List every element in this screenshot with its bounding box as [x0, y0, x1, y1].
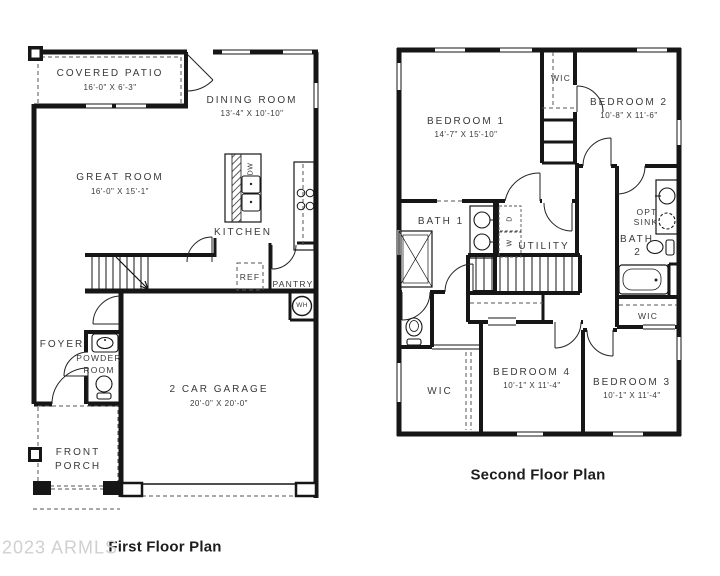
bath2-label-2: 2 — [634, 248, 642, 258]
bedroom2-label: BEDROOM 2 — [590, 98, 668, 108]
wh-label: WH — [296, 303, 307, 310]
bedroom1-label: BEDROOM 1 — [427, 117, 505, 127]
bedroom4-dims: 10'-1" X 11'-4" — [503, 382, 560, 390]
dw-label: DW — [248, 163, 255, 176]
floor-plan-page: COVERED PATIO 16'-0" X 6'-3" DINING ROOM… — [0, 0, 720, 576]
bedroom2-dims: 10'-8" X 11'-6" — [600, 112, 657, 120]
garage-door — [122, 483, 316, 496]
bedroom1-dims: 14'-7" X 15'-10" — [435, 131, 498, 139]
wic-top-label: WIC — [551, 74, 571, 83]
stairs-second-floor — [476, 257, 572, 291]
covered-patio-label: COVERED PATIO — [57, 69, 164, 79]
range-counter — [294, 162, 314, 250]
kitchen-island — [225, 154, 261, 222]
sink-icon — [92, 334, 118, 352]
foyer-label: FOYER — [40, 340, 84, 350]
porch-posts — [28, 46, 121, 495]
second-floor-title: Second Floor Plan — [470, 467, 605, 484]
bedroom3-dims: 10'-1" X 11'-4" — [603, 392, 660, 400]
stairs-first-floor — [92, 257, 148, 289]
sink-icon — [659, 188, 675, 204]
dining-room-dims: 13'-4" X 10'-10" — [221, 110, 284, 118]
wic-right-label: WIC — [638, 312, 658, 321]
great-room-label: GREAT ROOM — [76, 173, 163, 183]
garage-dims: 20'-0" X 20'-0" — [190, 400, 248, 408]
ref-label: REF — [240, 273, 261, 282]
opt-sink-label-1: OPT — [636, 208, 657, 217]
bedroom4-label: BEDROOM 4 — [493, 368, 571, 378]
sink-icon — [474, 212, 490, 228]
bath1-label: BATH 1 — [418, 217, 464, 227]
bath2-label-1: BATH — [620, 235, 654, 245]
front-porch-label-1: FRONT — [56, 448, 100, 458]
pantry-label: PANTRY — [273, 280, 314, 289]
armls-watermark: 2023 ARMLS — [2, 538, 118, 559]
powder-room-label-1: POWDER — [76, 354, 121, 363]
powder-room-label-2: ROOM — [83, 366, 114, 375]
dining-room-label: DINING ROOM — [207, 96, 298, 106]
wic-left-label: WIC — [427, 387, 452, 397]
opt-sink-label-2: SINK — [634, 218, 659, 227]
great-room-dims: 16'-0" X 15'-1" — [91, 188, 149, 196]
covered-patio-dims: 16'-0" X 6'-3" — [83, 84, 136, 92]
utility-label: UTILITY — [518, 242, 569, 252]
bedroom3-label: BEDROOM 3 — [593, 378, 671, 388]
front-porch-label-2: PORCH — [55, 462, 101, 472]
optional-sink-icon — [659, 213, 675, 229]
washer-label: W — [507, 239, 514, 246]
dryer-label: D — [507, 216, 514, 222]
first-floor-title: First Floor Plan — [108, 539, 221, 556]
cooktop-icon — [297, 189, 305, 197]
toilet-icon — [96, 376, 112, 392]
kitchen-label: KITCHEN — [214, 228, 272, 238]
garage-label: 2 CAR GARAGE — [169, 385, 268, 395]
